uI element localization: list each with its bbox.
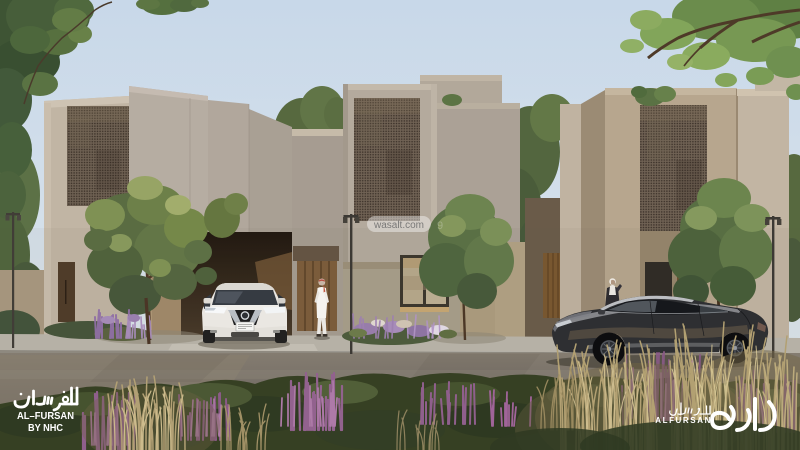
- svg-text:BY NHC: BY NHC: [28, 422, 63, 434]
- svg-text:AL–FURSAN: AL–FURSAN: [17, 410, 74, 422]
- svg-text:wasalt.com: wasalt.com: [373, 220, 424, 231]
- svg-text:9: 9: [437, 220, 443, 232]
- svg-text:ALFURSAN: ALFURSAN: [655, 416, 712, 425]
